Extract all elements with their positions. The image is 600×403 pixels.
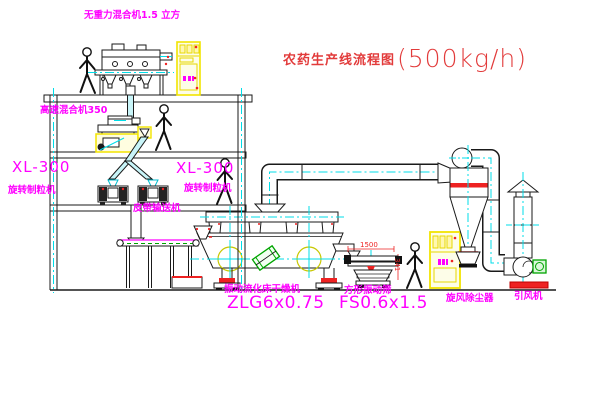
worker-top-floor (80, 48, 95, 93)
belt-conveyor (117, 240, 202, 288)
label-high-speed-mixer: 高速混合机350 (40, 106, 107, 116)
diagram-title: 农药生产线流程图 (500kg/h) (283, 44, 527, 73)
label-dryer-model: ZLG6x0.75 (227, 295, 325, 313)
label-cyclone: 旋风除尘器 (446, 294, 494, 304)
label-granulator-center-name: 旋转制粒机 (184, 184, 232, 194)
worker-second-floor (156, 105, 171, 150)
dryer-bellows (209, 222, 334, 233)
flow-diagram: 农药生产线流程图 (500kg/h) 无重力混合机1.5 立方 高速混合机350… (0, 0, 600, 403)
title-text: 农药生产线流程图 (283, 49, 395, 68)
title-capacity: (500kg/h) (397, 44, 527, 73)
dimension-screen-length: 1500 (360, 241, 378, 249)
high-speed-mixer (96, 116, 151, 152)
exhaust-duct (255, 164, 441, 215)
dimension-screen-height: 341 (393, 258, 401, 271)
label-fan: 引风机 (514, 292, 543, 302)
granulator-left (98, 180, 128, 205)
control-cabinet-top (177, 42, 200, 95)
label-screen-model: FS0.6x1.5 (339, 295, 428, 313)
induced-draft-fan (504, 257, 548, 288)
control-cabinet-right (430, 232, 460, 288)
fluid-bed-dryer (190, 206, 360, 291)
worker-by-screen (407, 243, 422, 288)
label-gravityless-mixer: 无重力混合机1.5 立方 (84, 11, 180, 21)
granulator-right (138, 180, 168, 205)
label-belt-conveyor: 皮带输送机 (133, 204, 181, 214)
label-granulator-left-name: 旋转制粒机 (8, 186, 56, 196)
label-granulator-center-model: XL-300 (176, 161, 234, 177)
label-granulator-left-model: XL-300 (12, 160, 70, 176)
